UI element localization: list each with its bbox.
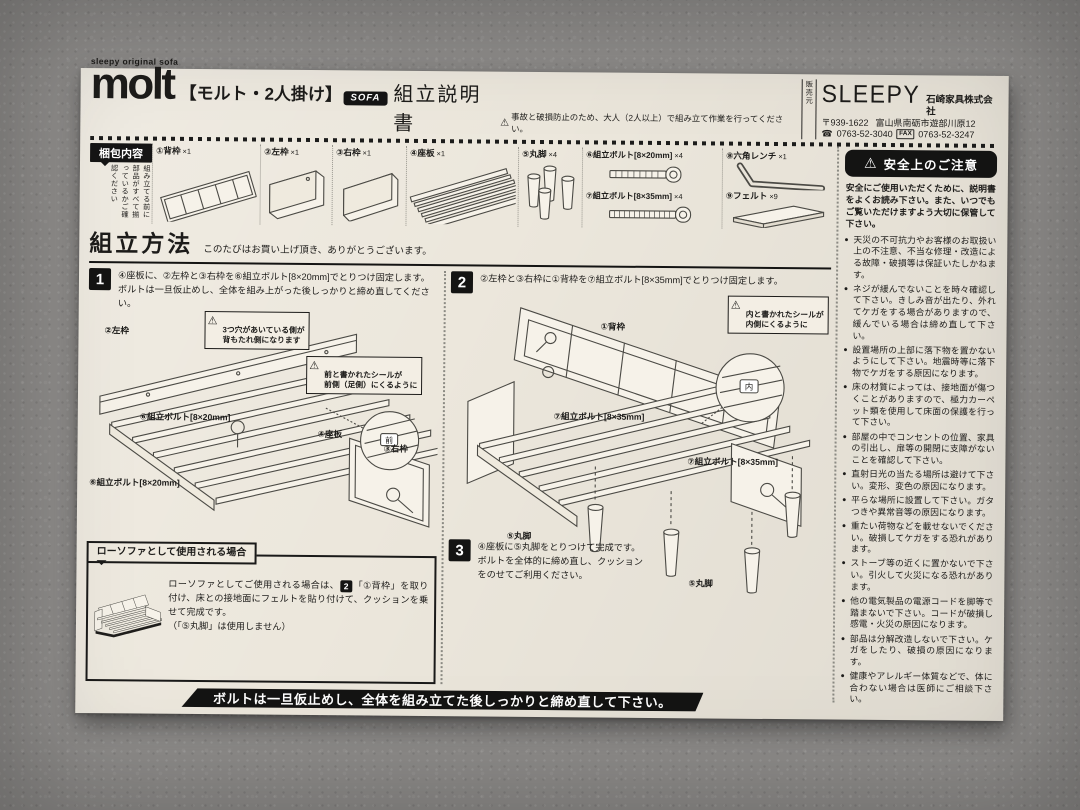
item-name: ⑥組立ボルト[8×20mm]	[586, 150, 672, 160]
safety-panel: ⚠ 安全上のご注意 安全にご使用いただくために、説明書をよくお読み下さい。また、…	[832, 147, 998, 704]
item-qty: ×9	[769, 192, 778, 201]
assembly-greeting: このたびはお買い上げ頂き、ありがとうございます。	[203, 241, 432, 257]
item-qty: ×4	[674, 192, 683, 201]
warning-text: 前と書かれたシールが 前側（足側）にくるように	[324, 370, 417, 390]
contents-note: 組み立てる前に部品がすべて揃っているかご確認ください	[108, 164, 152, 224]
item-qty: ×4	[674, 151, 683, 160]
step1-instruction: ④座板に、②左枠と③右枠を⑥組立ボルト[8×20mm]でとりつけ固定します。 ボ…	[118, 268, 439, 313]
company-logo: SLEEPY	[822, 78, 921, 110]
safety-item: 設置場所の上部に落下物を置かないようにして下さい。地震時等に落下物でケガをする原…	[843, 344, 995, 380]
low-sofa-title: ローソファとして使用される場合	[87, 541, 257, 564]
safety-item: 直射日光の当たる場所は避けて下さい。変形、変色の原因になります。	[842, 469, 994, 494]
product-name: 【モルト・2人掛け】	[179, 79, 337, 105]
item-qty: ×1	[291, 148, 300, 157]
warning-text: 3つ穴があいている側が 背もたれ側になります	[222, 325, 304, 345]
item-qty: ×1	[183, 147, 192, 156]
item-name: ④座板	[410, 148, 435, 158]
safety-item: 部品は分解改造しないで下さい。ケガをしたり、破損の原因になります。	[841, 633, 993, 669]
sofa-badge: SOFA	[343, 91, 387, 105]
step2-diagram: 内 ①背枠 ⚠内と書かれたシールが 内側にくる	[448, 293, 831, 598]
contents-label: 梱包内容	[90, 143, 152, 163]
bolt-20mm-drawing	[606, 164, 698, 183]
step1-header: 1 ④座板に、②左枠と③右枠を⑥組立ボルト[8×20mm]でとりつけ固定します。…	[89, 268, 439, 313]
seller-label: 販売元	[801, 79, 817, 139]
warning-icon: ⚠	[309, 359, 319, 374]
main-column: 梱包内容 組み立てる前に部品がすべて揃っているかご確認ください ①背枠×1 ②左…	[85, 140, 832, 702]
package-contents: 梱包内容 組み立てる前に部品がすべて揃っているかご確認ください ①背枠×1 ②左…	[89, 140, 832, 229]
fax-number: 0763-52-3247	[918, 129, 974, 141]
company-block: 販売元 SLEEPY 石崎家具株式会社 〒939-1622 富山県南砺市遊部川原…	[801, 79, 998, 141]
step1-column: 1 ④座板に、②左枠と③右枠を⑥組立ボルト[8×20mm]でとりつけ固定します。…	[85, 268, 439, 684]
safety-intro: 安全にご使用いただくために、説明書をよくお読み下さい。また、いつでもご覧いただけ…	[845, 182, 995, 232]
seat-board-drawing	[409, 160, 516, 225]
caution-text: 事故と破損防止のため、大人（2人以上）で組み立て作業を行ってください。	[511, 111, 795, 137]
contents-item-seat-board: ④座板×1	[405, 146, 518, 227]
holes-warning: ⚠3つ穴があいている側が 背もたれ側になります	[204, 311, 309, 349]
safety-item: 他の電気製品の電源コードを脚等で踏まないで下さい。コードが破損し感電・火災の原因…	[841, 596, 993, 632]
safety-item: 天災の不可抗力やお客様のお取扱い上の不注意、不当な修理・改造による故障・破損等は…	[844, 234, 996, 282]
inner-sticker: 内	[745, 382, 754, 392]
fax-icon: FAX	[897, 129, 915, 139]
safety-list: 天災の不可抗力やお客様のお取扱い上の不注意、不当な修理・改造による故障・破損等は…	[840, 234, 996, 707]
front-sticker-warning: ⚠前と書かれたシールが 前側（足側）にくるように	[306, 356, 423, 395]
contents-item-left-frame: ②左枠×1	[259, 145, 332, 226]
warning-icon: ⚠	[208, 314, 218, 329]
header-left: sleepy original sofa molt 【モルト・2人掛け】 SOF…	[90, 56, 500, 137]
safety-item: 床の材質によっては、接地面が傷つくことがありますので、極力カーペット類を使用して…	[843, 382, 995, 430]
left-frame-label: ②左枠	[104, 325, 129, 337]
logo-row: molt 【モルト・2人掛け】 SOFA 組立説明書	[90, 66, 500, 137]
phone-number: 0763-52-3040	[837, 128, 893, 140]
bolt-label: ⑥組立ボルト[8×20mm]	[89, 476, 180, 489]
step1-number: 1	[89, 268, 111, 290]
round-legs-drawing	[521, 162, 580, 225]
step1-diagram: 前 ②左枠 ⚠3つ穴があいている側が 背もたれ側になります ⚠前と書かれたシール…	[87, 310, 439, 539]
step2-instruction: ②左枠と③右枠に①背枠を⑦組立ボルト[8×35mm]でとりつけ固定します。	[480, 271, 783, 288]
contents-item-round-legs: ⑤丸脚×4	[517, 147, 582, 228]
warning-text: 内と書かれたシールが 内側にくるように	[746, 309, 824, 329]
retighten-banner: ボルトは一旦仮止めし、全体を組み立てた後しっかりと締め直して下さい。	[181, 688, 703, 712]
assembly-title: 組立方法	[89, 224, 193, 259]
item-name: ⑤丸脚	[522, 149, 547, 159]
phone-icon: ☎	[821, 128, 832, 139]
item-name: ①背枠	[156, 146, 181, 156]
low-sofa-section: ローソファとして使用される場合	[85, 553, 436, 684]
warning-icon: ⚠	[731, 299, 741, 314]
back-frame-drawing	[156, 158, 257, 223]
warning-icon: ⚠	[864, 155, 878, 172]
item-name: ②左枠	[264, 147, 289, 157]
item-qty: ×1	[778, 152, 787, 161]
safety-title: 安全上のご注意	[883, 154, 978, 174]
step2-number: 2	[451, 271, 473, 293]
warning-icon: ⚠	[500, 117, 509, 128]
step3-instruction: ④座板に⑤丸脚をとりつけて完成です。 ボルトを全体的に締め直し、クッション をの…	[477, 539, 643, 583]
header-right: ⚠ 事故と破損防止のため、大人（2人以上）で組み立て作業を行ってください。 販売…	[500, 76, 999, 141]
assembly-title-row: 組立方法 このたびはお買い上げ頂き、ありがとうございます。	[89, 223, 831, 269]
contents-item-right-frame: ③右枠×1	[331, 145, 406, 226]
right-frame-label: ③右枠	[383, 443, 408, 455]
item-qty: ×4	[549, 150, 558, 159]
item-name: ⑧六角レンチ	[726, 151, 776, 161]
company-name: 石崎家具株式会社	[926, 94, 999, 118]
postal-code: 〒939-1622	[821, 117, 868, 129]
low-sofa-text-1: ローソファとしてご使用される場合は、	[168, 578, 339, 589]
contents-header: 梱包内容 組み立てる前に部品がすべて揃っているかご確認ください	[89, 143, 152, 224]
step3-header: 3 ④座板に⑤丸脚をとりつけて完成です。 ボルトを全体的に締め直し、クッション …	[448, 539, 648, 583]
inner-sticker-warning: ⚠内と書かれたシールが 内側にくるように	[728, 296, 829, 334]
contents-item-back-frame: ①背枠×1	[151, 144, 260, 225]
right-frame-drawing	[336, 161, 405, 222]
safety-item: 重たい荷物などを載せないでください。破損してケガをする恐れがあります。	[842, 520, 994, 556]
safety-item: 健康やアレルギー体質などで、体に合わない場合は医師にご相談下さい。	[840, 671, 992, 707]
steps-area: 1 ④座板に、②左枠と③右枠を⑥組立ボルト[8×20mm]でとりつけ固定します。…	[85, 263, 831, 688]
felt-drawing	[727, 202, 827, 229]
round-leg-label: ⑤丸脚	[688, 577, 713, 589]
item-name: ③右枠	[336, 147, 361, 157]
safety-item: 部屋の中でコンセントの位置、家具の引出し、扉等の開閉に支障がないことを確認して下…	[842, 431, 994, 467]
bolt-label: ⑦組立ボルト[8×35mm]	[554, 410, 645, 423]
product-logo: molt	[91, 66, 174, 103]
bolt-label: ⑦組立ボルト[8×35mm]	[687, 455, 778, 468]
safety-title-bar: ⚠ 安全上のご注意	[845, 150, 997, 178]
column-separator	[440, 271, 446, 684]
safety-item: 平らな場所に設置して下さい。ガタつきや異常音等の原因になります。	[842, 495, 994, 520]
company-info: SLEEPY 石崎家具株式会社 〒939-1622 富山県南砺市遊部川原12 ☎…	[821, 79, 998, 141]
address: 富山県南砺市遊部川原12	[875, 117, 975, 129]
instruction-sheet: sleepy original sofa molt 【モルト・2人掛け】 SOF…	[75, 68, 1009, 721]
document-title: 組立説明書	[393, 78, 501, 137]
step3-number: 3	[449, 539, 471, 561]
contents-item-bolts: ⑥組立ボルト[8×20mm]×4 ⑦組立ボルト[8×35mm]×4	[581, 147, 722, 228]
photo-background: sleepy original sofa molt 【モルト・2人掛け】 SOF…	[0, 0, 1080, 810]
safety-item: ストーブ等の近くに置かないで下さい。引火して火災になる恐れがあります。	[841, 558, 993, 594]
header: sleepy original sofa molt 【モルト・2人掛け】 SOF…	[90, 77, 998, 141]
left-frame-drawing	[264, 161, 331, 222]
item-name: ⑨フェルト	[726, 191, 768, 201]
assembly-caution: ⚠ 事故と破損防止のため、大人（2人以上）で組み立て作業を行ってください。	[500, 111, 794, 138]
seat-board-label: ④座板	[318, 428, 343, 440]
bolt-35mm-drawing	[606, 205, 698, 224]
step2-reference: 2	[340, 580, 352, 592]
safety-item: ネジが緩んでないことを時々確認して下さい。きしみ音が出たり、外れてケガをする場合…	[843, 283, 996, 343]
hex-wrench-drawing	[727, 162, 827, 191]
item-qty: ×1	[363, 148, 372, 157]
step2-column: 2 ②左枠と③右枠に①背枠を⑦組立ボルト[8×35mm]でとりつけ固定します。	[447, 271, 831, 688]
contents-item-wrench-felt: ⑧六角レンチ×1 ⑨フェルト×9	[721, 149, 832, 230]
low-sofa-note: （「⑤丸脚」は使用しません）	[168, 619, 428, 636]
item-name: ⑦組立ボルト[8×35mm]	[586, 191, 672, 201]
item-qty: ×1	[437, 149, 446, 158]
low-sofa-drawing	[92, 558, 165, 669]
low-sofa-text: ローソファとしてご使用される場合は、2「①背枠」を取り付け、床との接地面にフェル…	[164, 568, 431, 670]
bolt-label: ⑥組立ボルト[8×20mm]	[140, 411, 231, 424]
back-frame-label: ①背枠	[601, 321, 626, 333]
